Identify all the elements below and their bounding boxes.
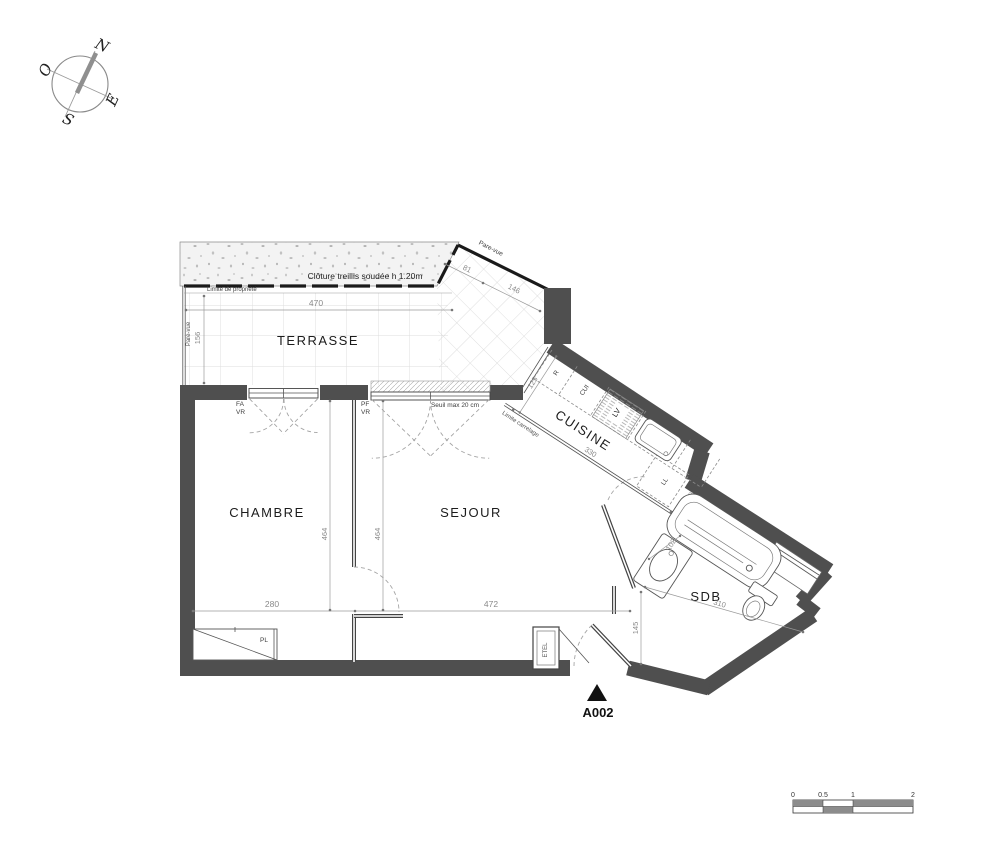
entrance-door [574, 625, 631, 666]
entrance-marker: A002 [582, 684, 613, 720]
unit-number-label: A002 [582, 705, 613, 720]
dim-terrace-depth: 156 [193, 332, 202, 345]
compass-rose: N O E S [35, 34, 123, 130]
washer-label: LL [660, 477, 670, 487]
scale-tick-0: 0 [791, 792, 795, 799]
scale-tick-1: 1 [851, 792, 855, 799]
cooker-label: CUI [579, 384, 591, 397]
dim-sejour-height: 464 [373, 528, 382, 541]
dim-hall-width: 145 [631, 622, 640, 635]
floorplan-svg: N O E S Clôture treillis soudée h 1.20m … [0, 0, 1000, 857]
window-sejour-type-label: PF [361, 401, 369, 408]
window-sejour-shutter-label: VR [361, 409, 370, 416]
window-chambre: FA VR [236, 389, 318, 435]
window-sejour: PF VR Seuil max 20 cm [361, 381, 490, 458]
door-swing-sdb [608, 477, 647, 500]
compass-east-label: E [102, 91, 123, 109]
dim-sejour-width: 472 [484, 599, 498, 609]
window-sill-hatch [371, 381, 490, 392]
window-chambre-shutter-label: VR [236, 409, 245, 416]
scale-tick-2: 2 [911, 792, 915, 799]
dim-chambre-width: 280 [265, 599, 279, 609]
closet-pl: PL [193, 627, 277, 660]
room-label-terrasse: TERRASSE [277, 333, 359, 348]
door-swing-chambre [354, 567, 399, 612]
terrace: Clôture treillis soudée h 1.20m Limite d… [180, 240, 551, 392]
dim-chambre-height: 464 [320, 528, 329, 541]
pare-vue-left-label: Pare-vue [186, 321, 192, 346]
room-label-chambre: CHAMBRE [229, 505, 305, 520]
fridge-label: R [552, 369, 561, 377]
dim-sdb-length: 310 [712, 598, 727, 610]
scale-bar: 0 0.5 1 2 [791, 792, 915, 813]
room-label-sejour: SEJOUR [440, 505, 502, 520]
room-labels-and-dims: CHAMBRE SEJOUR 280 472 464 464 145 [192, 400, 643, 666]
compass-south-label: S [60, 109, 77, 130]
floorplan-page: N O E S Clôture treillis soudée h 1.20m … [0, 0, 1000, 857]
dim-terrace-width: 470 [309, 298, 323, 308]
toilet [735, 581, 778, 626]
sill-note-label: Seuil max 20 cm [431, 402, 479, 409]
entrance-marker-icon [587, 684, 607, 701]
closet-etel-label: ETEL [543, 642, 549, 658]
scale-tick-05: 0.5 [818, 792, 828, 799]
window-chambre-type-label: FA [236, 401, 245, 408]
property-limit-label: Limite de propriété [207, 287, 257, 293]
fence-label: Clôture treillis soudée h 1.20m [308, 271, 423, 281]
closet-pl-label: PL [260, 637, 268, 644]
